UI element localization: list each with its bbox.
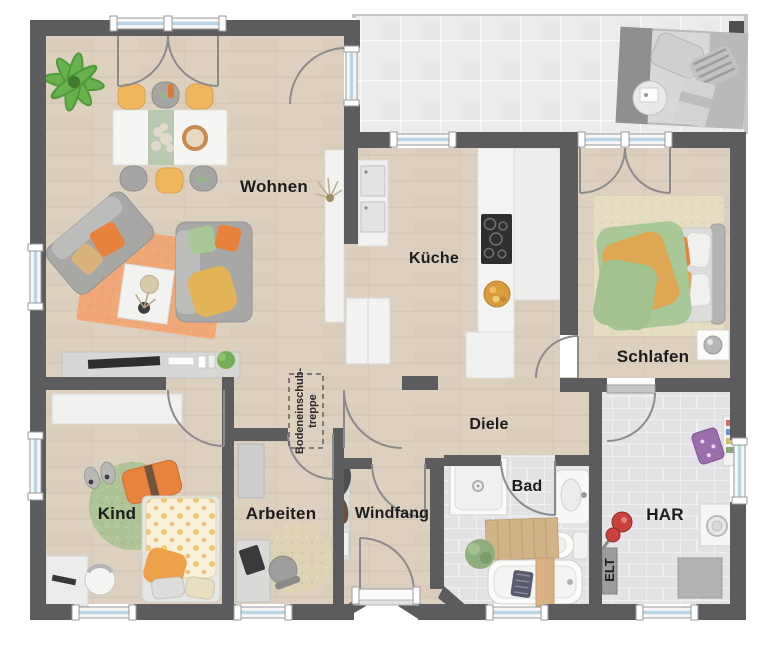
front-door (352, 587, 420, 605)
wall-schlafen-har (560, 378, 607, 392)
wall-exterior-bottom (546, 604, 638, 620)
tv-board (62, 351, 240, 378)
bathtub (488, 558, 582, 606)
wall-kueche-diele (402, 376, 438, 390)
room-label-har: HAR (646, 505, 683, 524)
tub-caddy (536, 558, 554, 606)
nightstand (697, 330, 729, 360)
window (636, 605, 698, 620)
kids-bed (141, 496, 220, 602)
window (486, 605, 548, 620)
floor-plan-drawing: Bodeneinschub- treppe Wohnen Küche Schla… (0, 0, 775, 648)
wall-arbeiten-diele (233, 428, 288, 441)
terrace (352, 14, 748, 134)
dining-set (113, 82, 227, 193)
sofa-right (176, 222, 252, 322)
kids-wardrobe (52, 394, 182, 424)
outdoor-rug (616, 27, 749, 130)
wall-bad-diele (444, 455, 501, 466)
bath-mat (485, 518, 558, 560)
wall-exterior-bottom (30, 604, 74, 620)
cooktop-icon (481, 214, 512, 264)
wall-terrace-south (344, 132, 392, 148)
room-label-schlafen: Schlafen (617, 347, 689, 366)
window (110, 16, 226, 31)
room-label-kind: Kind (98, 504, 137, 523)
room-label-diele: Diele (469, 416, 508, 433)
storage-box (678, 558, 722, 598)
kitchen-block (514, 148, 560, 300)
wall-wohnen-kind (46, 377, 166, 390)
window (344, 46, 359, 106)
terrace-side-table (633, 81, 667, 115)
bed-duvet (591, 220, 693, 333)
room-label-elt: ELT (602, 558, 617, 582)
bedroom (591, 196, 729, 360)
shower (450, 458, 507, 515)
room-label-bad: Bad (512, 478, 543, 495)
wall-exterior-left (30, 20, 46, 620)
room-label-kueche: Küche (409, 250, 459, 267)
room-label-wohnen: Wohnen (240, 177, 308, 196)
window (28, 432, 43, 500)
attic-stair-label-line2: treppe (307, 394, 319, 428)
wall-windfang-bad (430, 458, 444, 589)
window (28, 244, 43, 310)
wall-terrace-south (454, 132, 580, 148)
wall-exterior-bottom (134, 604, 236, 620)
wall-kueche-wohnen (344, 148, 358, 244)
wall-exterior-bottom (696, 604, 746, 620)
wall-wohnen-terrace (344, 20, 360, 48)
attic-stair-label-line1: Bodeneinschub- (294, 368, 306, 455)
kitchen-base-cabinet (466, 332, 514, 378)
floor-plan-page: Bodeneinschub- treppe Wohnen Küche Schla… (0, 0, 775, 648)
sink (556, 470, 589, 524)
wall-schlafen-har (655, 378, 730, 392)
plant-small (217, 351, 235, 369)
window (390, 132, 456, 147)
window (234, 605, 292, 620)
window (578, 132, 672, 147)
wall-bad-har (589, 392, 602, 604)
office-shelf (238, 444, 264, 498)
fruit-bowl (484, 281, 510, 307)
oven-icon (361, 202, 385, 232)
wall-exterior-right (730, 502, 746, 620)
wall-kueche-schlafen (560, 148, 578, 335)
room-label-arbeiten: Arbeiten (246, 504, 317, 523)
wall-bad-diele (555, 455, 589, 466)
wall-windfang-diele (344, 458, 372, 469)
room-label-windfang: Windfang (355, 505, 429, 522)
plant-bath (465, 539, 495, 569)
lamp-icon (704, 336, 722, 354)
window (732, 438, 747, 504)
coffee-table (117, 264, 174, 324)
wall-arbeiten-windfang (333, 428, 344, 604)
oven-icon (361, 166, 385, 196)
window (72, 605, 136, 620)
washing-machine (700, 504, 734, 546)
wall-exterior-right (730, 132, 746, 440)
